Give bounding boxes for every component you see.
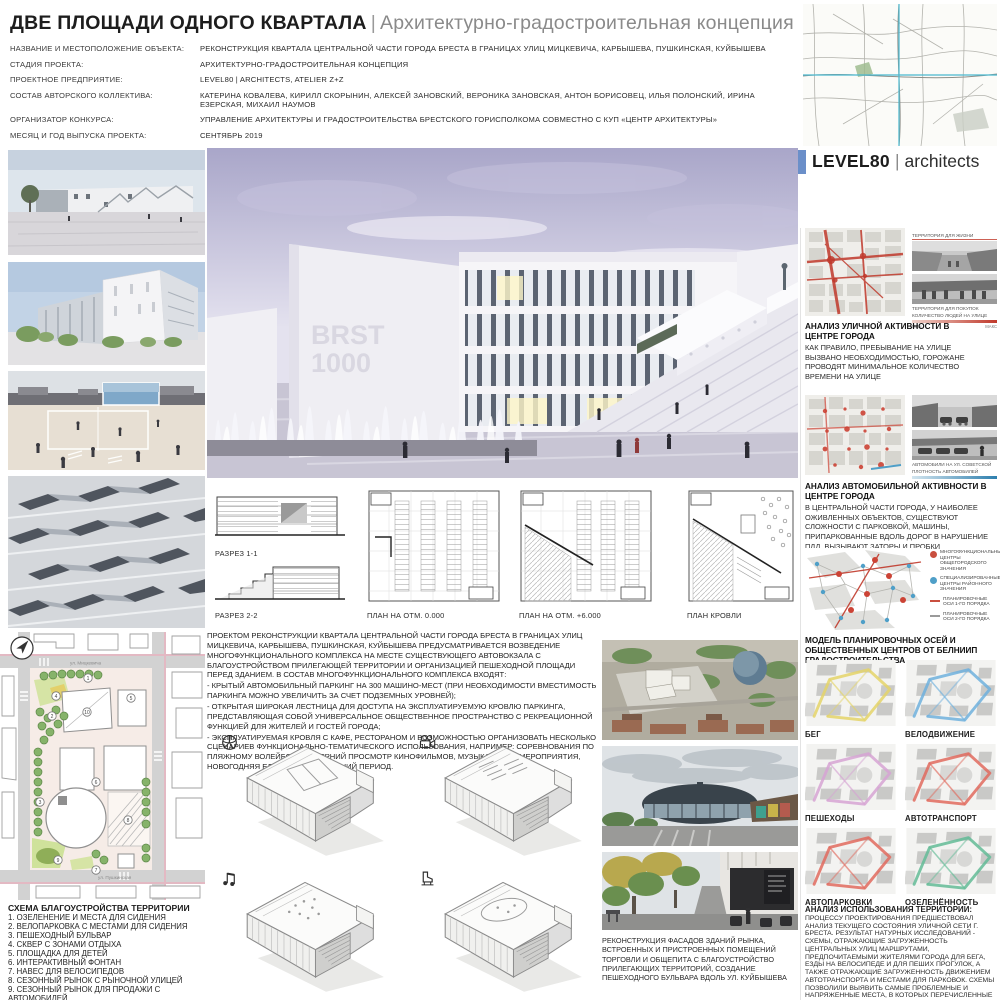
legend-item: 5. ПЛОЩАДКА ДЛЯ ДЕТЕЙ xyxy=(8,949,208,958)
project-info-table: НАЗВАНИЕ И МЕСТОПОЛОЖЕНИЕ ОБЪЕКТА: РЕКОН… xyxy=(10,44,780,140)
photo-boulevard xyxy=(602,852,798,930)
legend-item: 8. СЕЗОННЫЙ РЫНОК С РЫНОЧНОЙ УЛИЦЕЙ xyxy=(8,976,208,985)
car-scale-bar xyxy=(912,476,997,479)
axon-ice-skating xyxy=(423,874,583,998)
north-compass-icon xyxy=(11,637,33,659)
diagram-run xyxy=(805,660,897,726)
description-paragraph: - ОТКРЫТАЯ ШИРОКАЯ ЛЕСТНИЦА ДЛЯ ДОСТУПА … xyxy=(207,702,600,732)
siteplan-legend-title: СХЕМА БЛАГОУСТРОЙСТВА ТЕРРИТОРИИ xyxy=(8,903,208,913)
legend-item: 9. СЕЗОННЫЙ РЫНОК ДЛЯ ПРОДАЖИ С АВТОМОБИ… xyxy=(8,985,208,1000)
svg-text:7: 7 xyxy=(95,868,98,874)
plan-level6-drawing xyxy=(517,487,657,607)
diagram-run-label: БЕГ xyxy=(805,730,821,739)
car-analysis-body: В ЦЕНТРАЛЬНОЙ ЧАСТИ ГОРОДА, У НАИБОЛЕЕ О… xyxy=(805,503,993,551)
main-render: BRST 1000 xyxy=(207,148,798,478)
render-facade-detail xyxy=(8,476,205,628)
info-value: УПРАВЛЕНИЕ АРХИТЕКТУРЫ И ГРАДОСТРОИТЕЛЬС… xyxy=(200,115,780,124)
territory-analysis-title: АНАЛИЗ ИСПОЛЬЗОВАНИЯ ТЕРРИТОРИИ: xyxy=(805,905,1000,914)
info-label: ОРГАНИЗАТОР КОНКУРСА: xyxy=(10,115,200,124)
title-divider: | xyxy=(367,12,380,34)
site-plan: 1 2 3 4 5 6 7 8 9 10 ул. Мицкевича ул. П… xyxy=(0,632,205,900)
diagram-pedestrians xyxy=(805,744,897,810)
legend-line-red xyxy=(930,600,940,602)
legend-dot-blue xyxy=(930,577,937,584)
svg-text:5: 5 xyxy=(130,696,133,702)
info-value: LEVEL80 | ARCHITECTS, ATELIER Z+Z xyxy=(200,75,780,84)
diagram-parking xyxy=(805,828,897,894)
svg-text:10: 10 xyxy=(84,710,90,716)
plan-level0-drawing xyxy=(365,487,505,607)
render-rooftop-volleyball xyxy=(8,371,205,470)
legend-item: 4. СКВЕР С ЗОНАМИ ОТДЫХА xyxy=(8,940,208,949)
territory-analysis-body: ПРОЦЕССУ ПРОЕКТИРОВАНИЯ ПРЕДШЕСТВОВАЛ АН… xyxy=(805,915,1000,1000)
photos-caption: РЕКОНСТРУКЦИЯ ФАСАДОВ ЗДАНИЙ РЫНКА, ВСТР… xyxy=(602,936,798,983)
car-photo-caption: АВТОМОБИЛИ НА УЛ. СОВЕТСКОЙ xyxy=(912,462,997,467)
street-photo-2 xyxy=(912,274,997,304)
planning-model-diagram xyxy=(805,548,925,632)
info-label: СОСТАВ АВТОРСКОГО КОЛЛЕКТИВА: xyxy=(10,91,200,109)
section-2-2-label: РАЗРЕЗ 2-2 xyxy=(215,611,258,620)
street-activity-map xyxy=(805,228,905,316)
info-value: РЕКОНСТРУКЦИЯ КВАРТАЛА ЦЕНТРАЛЬНОЙ ЧАСТИ… xyxy=(200,44,780,53)
photo-aerial-market xyxy=(602,640,798,740)
plan-roof-drawing xyxy=(685,487,797,607)
svg-text:9: 9 xyxy=(57,858,60,864)
building-sign-line2: 1000 xyxy=(311,348,371,378)
plan-level0-label: ПЛАН НА ОТМ. 0.000 xyxy=(367,611,444,620)
info-label: СТАДИЯ ПРОЕКТА: xyxy=(10,60,200,69)
diagram-cars-label: АВТОТРАНСПОРТ xyxy=(905,814,977,823)
axon-music xyxy=(225,874,385,998)
diagram-bike xyxy=(905,660,997,726)
street-label-top: ул. Мицкевича xyxy=(70,661,101,666)
model-legend-text: МНОГОФУНКЦИОНАЛЬНЫЕ ЦЕНТРЫ ОБЩЕГОРОДСКОГ… xyxy=(940,550,996,572)
info-label: ПРОЕКТНОЕ ПРЕДПРИЯТИЕ: xyxy=(10,75,200,84)
plan-roof-label: ПЛАН КРОВЛИ xyxy=(687,611,742,620)
info-label: НАЗВАНИЕ И МЕСТОПОЛОЖЕНИЕ ОБЪЕКТА: xyxy=(10,44,200,53)
info-value: СЕНТЯБРЬ 2019 xyxy=(200,131,780,140)
logo-suffix: architects xyxy=(905,151,980,172)
diagram-bike-label: ВЕЛОДВИЖЕНИЕ xyxy=(905,730,975,739)
car-photo-2 xyxy=(912,430,997,460)
svg-text:3: 3 xyxy=(39,800,42,806)
logo-divider: | xyxy=(890,151,905,172)
column-divider xyxy=(800,228,801,1000)
svg-text:8: 8 xyxy=(127,818,130,824)
render-plaza-wide xyxy=(8,150,205,255)
car-analysis-title: АНАЛИЗ АВТОМОБИЛЬНОЙ АКТИВНОСТИ В ЦЕНТРЕ… xyxy=(805,482,995,502)
car-photo-1 xyxy=(912,395,997,427)
model-legend-text: ПЛАНИРОВОЧНЫЕ ОСИ 2-ГО ПОРЯДКА xyxy=(943,612,999,623)
scale-max: МАКС xyxy=(985,324,997,329)
legend-line-gray xyxy=(930,615,940,617)
plan-level6-label: ПЛАН НА ОТМ. +6.000 xyxy=(519,611,601,620)
city-location-map xyxy=(803,4,997,146)
car-activity-map xyxy=(805,395,905,475)
roof-scenarios xyxy=(207,732,600,1000)
info-value: КАТЕРИНА КОВАЛЕВА, КИРИЛЛ СКОРЫНИН, АЛЕК… xyxy=(200,91,780,109)
car-scale-label: ПЛОТНОСТЬ АВТОМОБИЛЕЙ xyxy=(912,469,997,474)
street-label-bottom: ул. Пушкинская xyxy=(98,875,132,880)
legend-item: 6. ИНТЕРАКТИВНЫЙ ФОНТАН xyxy=(8,958,208,967)
axon-volleyball xyxy=(225,738,385,862)
svg-text:2: 2 xyxy=(51,714,54,720)
legend-item: 2. ВЕЛОПАРКОВКА С МЕСТАМИ ДЛЯ СИДЕНИЯ xyxy=(8,922,208,931)
diagram-pedestrians-label: ПЕШЕХОДЫ xyxy=(805,814,855,823)
photo-market-dome xyxy=(602,746,798,846)
info-label: МЕСЯЦ И ГОД ВЫПУСКА ПРОЕКТА: xyxy=(10,131,200,140)
red-rule xyxy=(912,239,997,240)
description-paragraph: ПРОЕКТОМ РЕКОНСТРУКЦИИ КВАРТАЛА ЦЕНТРАЛЬ… xyxy=(207,631,600,680)
description-paragraph: - КРЫТЫЙ АВТОМОБИЛЬНЫЙ ПАРКИНГ НА 300 МА… xyxy=(207,681,600,701)
logo-brand: LEVEL80 xyxy=(812,151,890,172)
siteplan-legend: СХЕМА БЛАГОУСТРОЙСТВА ТЕРРИТОРИИ 1. ОЗЕЛ… xyxy=(8,903,208,1000)
model-legend-text: ПЛАНИРОВОЧНЫЕ ОСИ 1-ГО ПОРЯДКА xyxy=(943,597,999,608)
context-photos: РЕКОНСТРУКЦИЯ ФАСАДОВ ЗДАНИЙ РЫНКА, ВСТР… xyxy=(602,640,798,983)
street-analysis-body: КАК ПРАВИЛО, ПРЕБЫВАНИЕ НА УЛИЦЕ ВЫЗВАНО… xyxy=(805,343,990,382)
page-title: ДВЕ ПЛОЩАДИ ОДНОГО КВАРТАЛА|Архитектурно… xyxy=(10,12,794,35)
street-photo-caption-top: ТЕРРИТОРИЯ ДЛЯ ЖИЗНИ xyxy=(912,233,997,238)
section-1-1-drawing xyxy=(215,489,345,545)
title-main: ДВЕ ПЛОЩАДИ ОДНОГО КВАРТАЛА xyxy=(10,12,367,34)
competition-poster: ДВЕ ПЛОЩАДИ ОДНОГО КВАРТАЛА|Архитектурно… xyxy=(0,0,1000,1000)
diagram-greenery xyxy=(905,828,997,894)
svg-text:6: 6 xyxy=(95,780,98,786)
svg-text:1: 1 xyxy=(87,676,90,682)
title-subtitle: Архитектурно-градостроительная концепция xyxy=(380,12,794,34)
legend-item: 1. ОЗЕЛЕНЕНИЕ И МЕСТА ДЛЯ СИДЕНИЯ xyxy=(8,913,208,922)
legend-item: 3. ПЕШЕХОДНЫЙ БУЛЬВАР xyxy=(8,931,208,940)
building-sign-line1: BRST xyxy=(311,320,385,350)
street-photo-1 xyxy=(912,241,997,271)
diagram-cars xyxy=(905,744,997,810)
svg-text:4: 4 xyxy=(55,694,58,700)
render-corner-building xyxy=(8,262,205,365)
drawings-row: РАЗРЕЗ 1-1 РАЗРЕЗ 2-2 ПЛАН НА ОТМ. 0.000 xyxy=(207,487,798,625)
people-scale-label: КОЛИЧЕСТВО ЛЮДЕЙ НА УЛИЦЕ xyxy=(912,313,997,318)
info-value: АРХИТЕКТУРНО-ГРАДОСТРОИТЕЛЬНАЯ КОНЦЕПЦИЯ xyxy=(200,60,780,69)
model-legend: МНОГОФУНКЦИОНАЛЬНЫЕ ЦЕНТРЫ ОБЩЕГОРОДСКОГ… xyxy=(930,550,999,623)
axon-cinema xyxy=(423,738,583,862)
section-2-2-drawing xyxy=(215,561,345,607)
legend-item: 7. НАВЕС ДЛЯ ВЕЛОСИПЕДОВ xyxy=(8,967,208,976)
legend-dot-red xyxy=(930,551,937,558)
street-analysis-title: АНАЛИЗ УЛИЧНОЙ АКТИВНОСТИ В ЦЕНТРЕ ГОРОД… xyxy=(805,322,955,342)
street-photo-caption-bottom: ТЕРРИТОРИЯ ДЛЯ ПОКУПОК xyxy=(912,306,997,311)
studio-logo: LEVEL80 | architects xyxy=(812,148,998,174)
section-1-1-label: РАЗРЕЗ 1-1 xyxy=(215,549,258,558)
model-legend-text: СПЕЦИАЛИЗИРОВАННЫЕ ЦЕНТРЫ РАЙОННОГО ЗНАЧ… xyxy=(940,576,996,593)
